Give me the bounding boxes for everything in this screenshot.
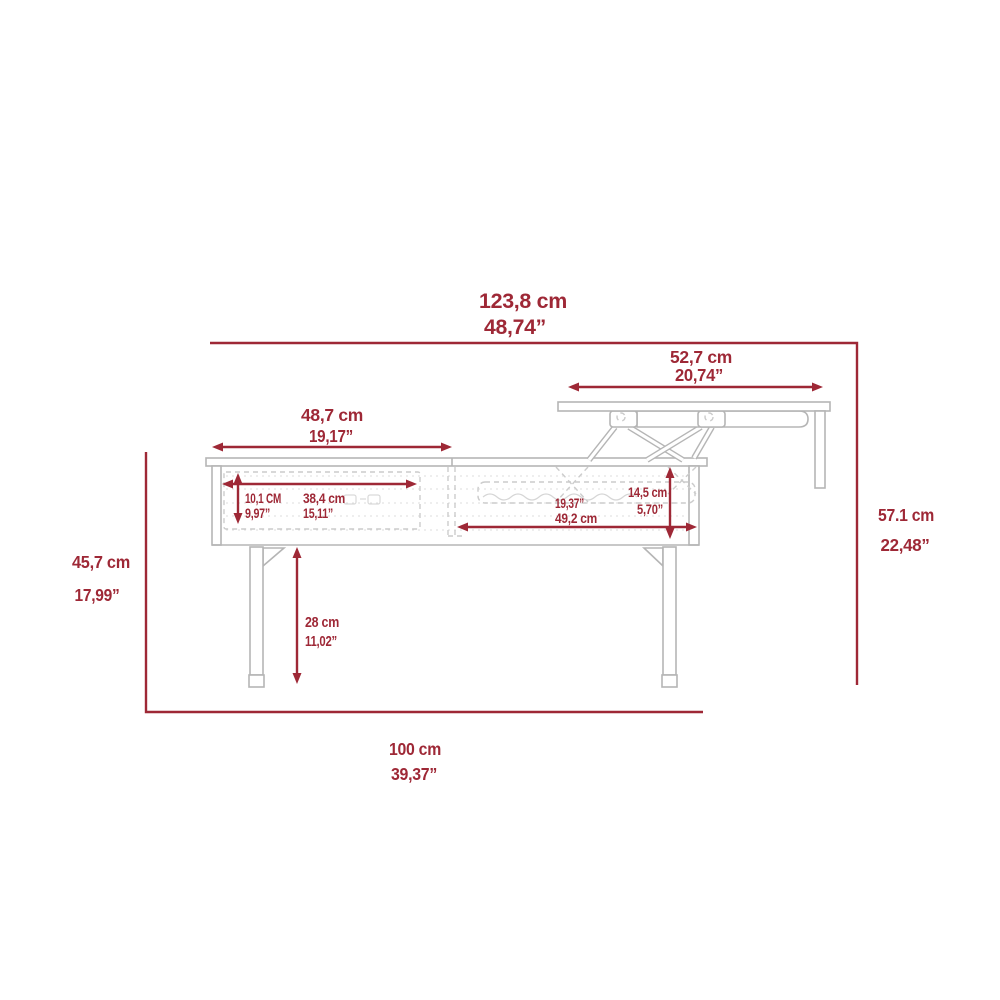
left-leg-brace [263, 548, 284, 566]
label-leg-height-cm: 28 cm [305, 614, 339, 631]
label-storage-width-in: 19,37” [555, 496, 584, 511]
right-leg-brace [644, 548, 663, 566]
left-leg-foot [249, 675, 264, 687]
label-body-height-in: 17,99” [75, 585, 120, 605]
body-right-panel [689, 466, 699, 545]
right-leg-foot [662, 675, 677, 687]
label-fixed-top-in: 19,17” [309, 426, 353, 446]
label-lift-rise-cm: 14,5 cm [628, 485, 667, 500]
label-storage-width-cm: 49,2 cm [555, 511, 597, 526]
label-lift-top-in: 20,74” [675, 365, 723, 385]
label-base-width-in: 39,37” [391, 764, 437, 784]
dimension-arrow-leg-height [293, 547, 302, 684]
label-lift-top-cm: 52,7 cm [670, 347, 732, 367]
label-drawer-width-cm: 38,4 cm [303, 491, 345, 506]
diagram-canvas: 123,8 cm 48,74” 52,7 cm 20,74” 48,7 cm 1… [0, 0, 1000, 1000]
table-body [206, 458, 707, 545]
right-leg [663, 547, 676, 675]
scissor-arms [589, 427, 712, 460]
label-total-height-cm: 57.1 cm [878, 505, 934, 525]
label-lift-rise-in: 5,70” [637, 502, 663, 517]
body-left-panel [212, 466, 221, 545]
dimension-arrow-drawer-height [234, 473, 243, 524]
label-base-width-cm: 100 cm [389, 739, 441, 759]
lift-top-side-panel [815, 411, 825, 488]
label-drawer-width-in: 15,11” [303, 506, 333, 521]
dimension-arrow-drawer-width [222, 480, 417, 489]
label-drawer-height-cm: 10,1 CM [245, 491, 281, 506]
label-body-height-cm: 45,7 cm [72, 552, 130, 572]
label-overall-width-in: 48,74” [484, 316, 546, 339]
label-drawer-height-in: 9,97” [245, 506, 270, 521]
hidden-hardware-marks [344, 495, 380, 504]
body-top-board [206, 458, 707, 466]
dimension-annotations: 123,8 cm 48,74” 52,7 cm 20,74” 48,7 cm 1… [72, 290, 934, 784]
dimension-diagram: 123,8 cm 48,74” 52,7 cm 20,74” 48,7 cm 1… [0, 0, 1000, 1000]
label-fixed-top-cm: 48,7 cm [301, 405, 363, 425]
label-total-height-in: 22,48” [881, 535, 930, 555]
dimension-line-base [146, 452, 703, 712]
label-overall-width-cm: 123,8 cm [479, 290, 567, 313]
lift-top-board [558, 402, 830, 411]
left-leg [250, 547, 263, 675]
label-leg-height-in: 11,02” [305, 633, 337, 650]
hidden-center-divider [448, 467, 462, 536]
coffee-table-drawing [206, 402, 830, 687]
